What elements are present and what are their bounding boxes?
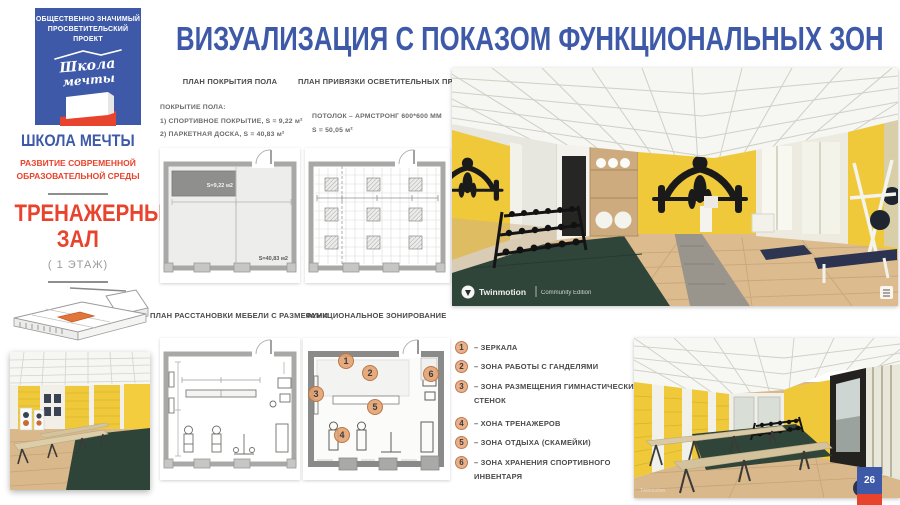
legend-item-4: 4 – ХОНА ТРЕНАЖЕРОВ: [455, 417, 655, 431]
plan-zoning-drawing: 1 2 3 4 5 6: [303, 338, 450, 480]
area-sport-label: S=9,22 м2: [207, 183, 233, 189]
plan-floor-cover-drawing: S=9,22 м2 S=40,83 м2: [160, 148, 300, 283]
legend-badge-5: 5: [455, 436, 468, 449]
zone-marker-3: 3: [308, 386, 324, 402]
logo-top-text: ОБЩЕСТВЕННО ЗНАЧИМЫЙ ПРОСВЕТИТЕЛЬСКИЙ ПР…: [35, 8, 141, 45]
legend-item-5: 5 – ЗОНА ОТДЫХА (СКАМЕЙКИ): [455, 436, 655, 450]
render-side-view-image: [10, 352, 150, 490]
sidebar-divider-top: [48, 193, 108, 195]
page-number: 26: [857, 467, 882, 494]
ceiling-note-line2: S = 50,05 м²: [312, 124, 442, 138]
floor-cover-note: ПОКРЫТИЕ ПОЛА: 1) СПОРТИВНОЕ ПОКРЫТИЕ, S…: [160, 101, 303, 142]
slide: ОБЩЕСТВЕННО ЗНАЧИМЫЙ ПРОСВЕТИТЕЛЬСКИЙ ПР…: [0, 0, 900, 505]
zone-marker-1: 1: [338, 353, 354, 369]
twinmotion-watermark-small: Twinmotion: [640, 488, 666, 494]
sidebar-divider-bottom: [48, 281, 108, 283]
area-parquet-label: S=40,83 м2: [259, 256, 288, 262]
floor-label: ( 1 ЭТАЖ): [0, 259, 156, 271]
room-title: ТРЕНАЖЕРНЫЙ ЗАЛ: [0, 201, 156, 254]
plan-lighting-drawing: [305, 148, 450, 283]
legend-badge-1: 1: [455, 341, 468, 354]
zone-marker-5: 5: [367, 399, 383, 415]
brand-subtitle-line1: РАЗВИТИЕ СОВРЕМЕННОЙ: [0, 157, 156, 170]
plan-furniture-drawing: [160, 338, 300, 480]
twinmotion-edition-watermark: Community Edition: [541, 290, 591, 296]
floor-cover-note-line2: 2) ПАРКЕТНАЯ ДОСКА, S = 40,83 м²: [160, 128, 303, 142]
logo-top-line1: ОБЩЕСТВЕННО ЗНАЧИМЫЙ: [35, 15, 141, 25]
legend-item-1: 1 – ЗЕРКАЛА: [455, 341, 655, 355]
legend-badge-4: 4: [455, 417, 468, 430]
room-title-line2: ЗАЛ: [57, 227, 99, 253]
legend-label-3: – ЗОНА РАЗМЕЩЕНИЯ ГИМНАСТИЧЕСКИХ СТЕНОК: [474, 380, 642, 409]
floor-cover-note-line1: 1) СПОРТИВНОЕ ПОКРЫТИЕ, S = 9,22 м²: [160, 115, 303, 129]
logo-building-icon: [56, 89, 120, 127]
legend-label-4: – ХОНА ТРЕНАЖЕРОВ: [474, 417, 561, 431]
page-number-accent: [857, 494, 882, 505]
isometric-keyplan-image: [6, 284, 152, 346]
ceiling-note: ПОТОЛОК – АРМСТРОНГ 600*600 ММ S = 50,05…: [312, 110, 442, 137]
legend-label-5: – ЗОНА ОТДЫХА (СКАМЕЙКИ): [474, 436, 591, 450]
school-logo-badge: ОБЩЕСТВЕННО ЗНАЧИМЫЙ ПРОСВЕТИТЕЛЬСКИЙ ПР…: [35, 8, 141, 125]
legend-label-1: – ЗЕРКАЛА: [474, 341, 518, 355]
zone-marker-6: 6: [423, 366, 439, 382]
zone-marker-4: 4: [334, 427, 350, 443]
floor-cover-note-heading: ПОКРЫТИЕ ПОЛА:: [160, 101, 303, 115]
plan-zoning-title: ФУНКЦИОНАЛЬНОЕ ЗОНИРОВАНИЕ: [300, 311, 452, 320]
legend-badge-3: 3: [455, 380, 468, 393]
logo-script-line2: мечты: [35, 70, 142, 91]
zone-legend: 1 – ЗЕРКАЛА 2 – ЗОНА РАБОТЫ С ГАНДЕЛЯМИ …: [455, 341, 655, 489]
zone-marker-2: 2: [362, 365, 378, 381]
brand-subtitle: РАЗВИТИЕ СОВРЕМЕННОЙ ОБРАЗОВАТЕЛЬНОЙ СРЕ…: [0, 157, 156, 183]
ceiling-note-line1: ПОТОЛОК – АРМСТРОНГ 600*600 ММ: [312, 110, 442, 124]
brand-subtitle-line2: ОБРАЗОВАТЕЛЬНОЙ СРЕДЫ: [0, 170, 156, 183]
page-number-block: 26: [857, 467, 882, 505]
plan-floor-cover-title: ПЛАН ПОКРЫТИЯ ПОЛА: [150, 77, 310, 86]
legend-item-2: 2 – ЗОНА РАБОТЫ С ГАНДЕЛЯМИ: [455, 360, 655, 374]
legend-item-6: 6 – ЗОНА ХРАНЕНИЯ СПОРТИВНОГО ИНВЕНТАРЯ: [455, 456, 655, 485]
brand-title: ШКОЛА МЕЧТЫ: [0, 131, 156, 151]
legend-badge-2: 2: [455, 360, 468, 373]
legend-label-2: – ЗОНА РАБОТЫ С ГАНДЕЛЯМИ: [474, 360, 598, 374]
legend-item-3: 3 – ЗОНА РАЗМЕЩЕНИЯ ГИМНАСТИЧЕСКИХ СТЕНО…: [455, 380, 655, 409]
room-title-line1: ТРЕНАЖЕРНЫЙ: [14, 201, 178, 227]
legend-label-6: – ЗОНА ХРАНЕНИЯ СПОРТИВНОГО ИНВЕНТАРЯ: [474, 456, 642, 485]
logo-top-line2: ПРОСВЕТИТЕЛЬСКИЙ ПРОЕКТ: [35, 25, 141, 45]
plan-lighting-title: ПЛАН ПРИВЯЗКИ ОСВЕТИТЕЛЬНЫХ ПРИБОРОВ: [298, 77, 454, 86]
slide-title: ВИЗУАЛИЗАЦИЯ С ПОКАЗОМ ФУНКЦИОНАЛЬНЫХ ЗО…: [176, 20, 884, 58]
plan-furniture-title: ПЛАН РАССТАНОВКИ МЕБЕЛИ С РАЗМЕРАМИ: [150, 311, 310, 320]
twinmotion-watermark: Twinmotion: [479, 287, 526, 297]
render-main-image: Twinmotion Community Edition: [452, 68, 898, 306]
legend-badge-6: 6: [455, 456, 468, 469]
